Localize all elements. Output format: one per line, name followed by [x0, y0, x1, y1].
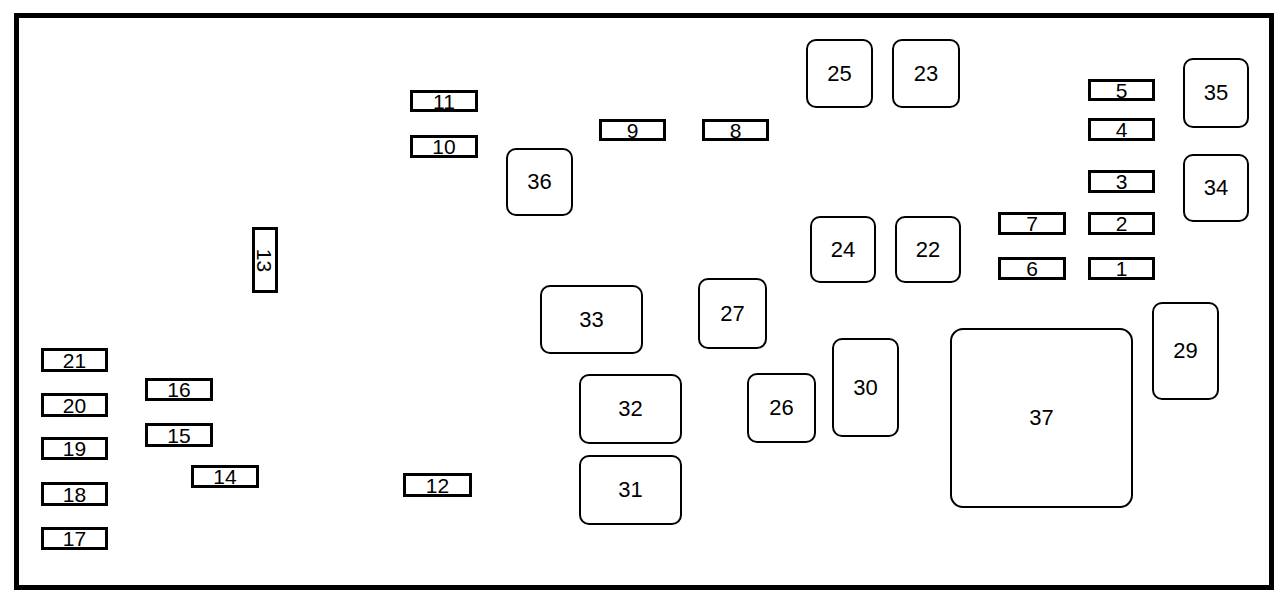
- fuse-slot-36: 36: [506, 148, 573, 216]
- fuse-slot-3: 3: [1088, 170, 1155, 193]
- fuse-slot-label: 4: [1116, 119, 1128, 140]
- fuse-slot-label: 2: [1116, 213, 1128, 234]
- fuse-slot-19: 19: [41, 437, 108, 460]
- fuse-slot-2: 2: [1088, 212, 1155, 235]
- fuse-slot-label: 33: [579, 309, 603, 331]
- fuse-slot-label: 26: [769, 397, 793, 419]
- fuse-slot-label: 21: [63, 350, 86, 371]
- fuse-slot-label: 8: [730, 120, 742, 141]
- fuse-slot-8: 8: [702, 119, 769, 141]
- fuse-slot-7: 7: [998, 212, 1066, 235]
- fuse-slot-label: 18: [63, 484, 86, 505]
- fuse-slot-label: 31: [618, 479, 642, 501]
- fuse-slot-label: 37: [1029, 407, 1053, 429]
- fuse-slot-12: 12: [403, 473, 472, 497]
- fuse-slot-label: 23: [914, 63, 938, 85]
- fuse-slot-label: 35: [1204, 82, 1228, 104]
- fuse-slot-label: 22: [916, 239, 940, 261]
- fuse-slot-35: 35: [1183, 58, 1249, 128]
- fuse-slot-label: 20: [63, 395, 86, 416]
- fuse-slot-17: 17: [41, 527, 108, 550]
- fuse-slot-label: 34: [1204, 177, 1228, 199]
- fuse-slot-26: 26: [747, 373, 816, 443]
- fuse-slot-30: 30: [832, 338, 899, 437]
- fuse-slot-label: 25: [827, 63, 851, 85]
- fuse-slot-13: 13: [252, 227, 278, 293]
- fuse-slot-1: 1: [1088, 257, 1155, 280]
- fuse-slot-37: 37: [950, 328, 1133, 508]
- fuse-slot-32: 32: [579, 374, 682, 444]
- fuse-slot-34: 34: [1183, 154, 1249, 222]
- fuse-slot-33: 33: [540, 285, 643, 354]
- fuse-slot-label: 27: [720, 303, 744, 325]
- fuse-slot-label: 5: [1116, 80, 1128, 101]
- fuse-slot-15: 15: [145, 423, 213, 447]
- fuse-slot-label: 17: [63, 528, 86, 549]
- fuse-slot-label: 29: [1173, 340, 1197, 362]
- fuse-slot-label: 9: [627, 120, 639, 141]
- fuse-slot-31: 31: [579, 455, 682, 525]
- fuse-slot-18: 18: [41, 482, 108, 506]
- fuse-slot-label: 19: [63, 438, 86, 459]
- fuse-slot-label: 3: [1116, 171, 1128, 192]
- fuse-slot-label: 15: [167, 425, 190, 446]
- fuse-slot-16: 16: [145, 378, 213, 401]
- fuse-slot-label: 36: [527, 171, 551, 193]
- fuse-slot-6: 6: [998, 257, 1066, 280]
- fuse-slot-11: 11: [410, 90, 478, 112]
- fuse-slot-10: 10: [410, 135, 478, 158]
- fuse-slot-27: 27: [698, 278, 767, 349]
- fuse-slot-label: 14: [213, 466, 236, 487]
- fuse-slot-label: 11: [433, 91, 455, 112]
- fuse-diagram: 1234567891011121314151617181920212223242…: [0, 0, 1286, 606]
- fuse-slot-label: 12: [426, 475, 449, 496]
- fuse-slot-4: 4: [1088, 118, 1155, 141]
- fuse-slot-label: 1: [1116, 258, 1128, 279]
- fuse-slot-9: 9: [599, 119, 666, 141]
- fuse-slot-22: 22: [895, 216, 961, 283]
- fuse-slot-label: 16: [167, 379, 190, 400]
- fuse-slot-label: 30: [853, 377, 877, 399]
- fuse-slot-5: 5: [1088, 79, 1155, 101]
- fuse-slot-23: 23: [892, 39, 960, 108]
- fuse-slot-24: 24: [810, 216, 876, 283]
- fuse-slot-label: 13: [255, 248, 276, 271]
- fuse-slot-14: 14: [191, 465, 259, 488]
- fuse-slot-label: 24: [831, 239, 855, 261]
- fuse-slot-21: 21: [41, 348, 108, 372]
- fuse-slot-label: 7: [1026, 213, 1038, 234]
- fuse-slot-label: 6: [1026, 258, 1038, 279]
- fuse-slot-25: 25: [806, 39, 873, 108]
- fuse-slot-label: 10: [432, 136, 455, 157]
- fuse-slot-29: 29: [1152, 302, 1219, 400]
- fuse-slot-label: 32: [618, 398, 642, 420]
- fuse-slot-20: 20: [41, 393, 108, 417]
